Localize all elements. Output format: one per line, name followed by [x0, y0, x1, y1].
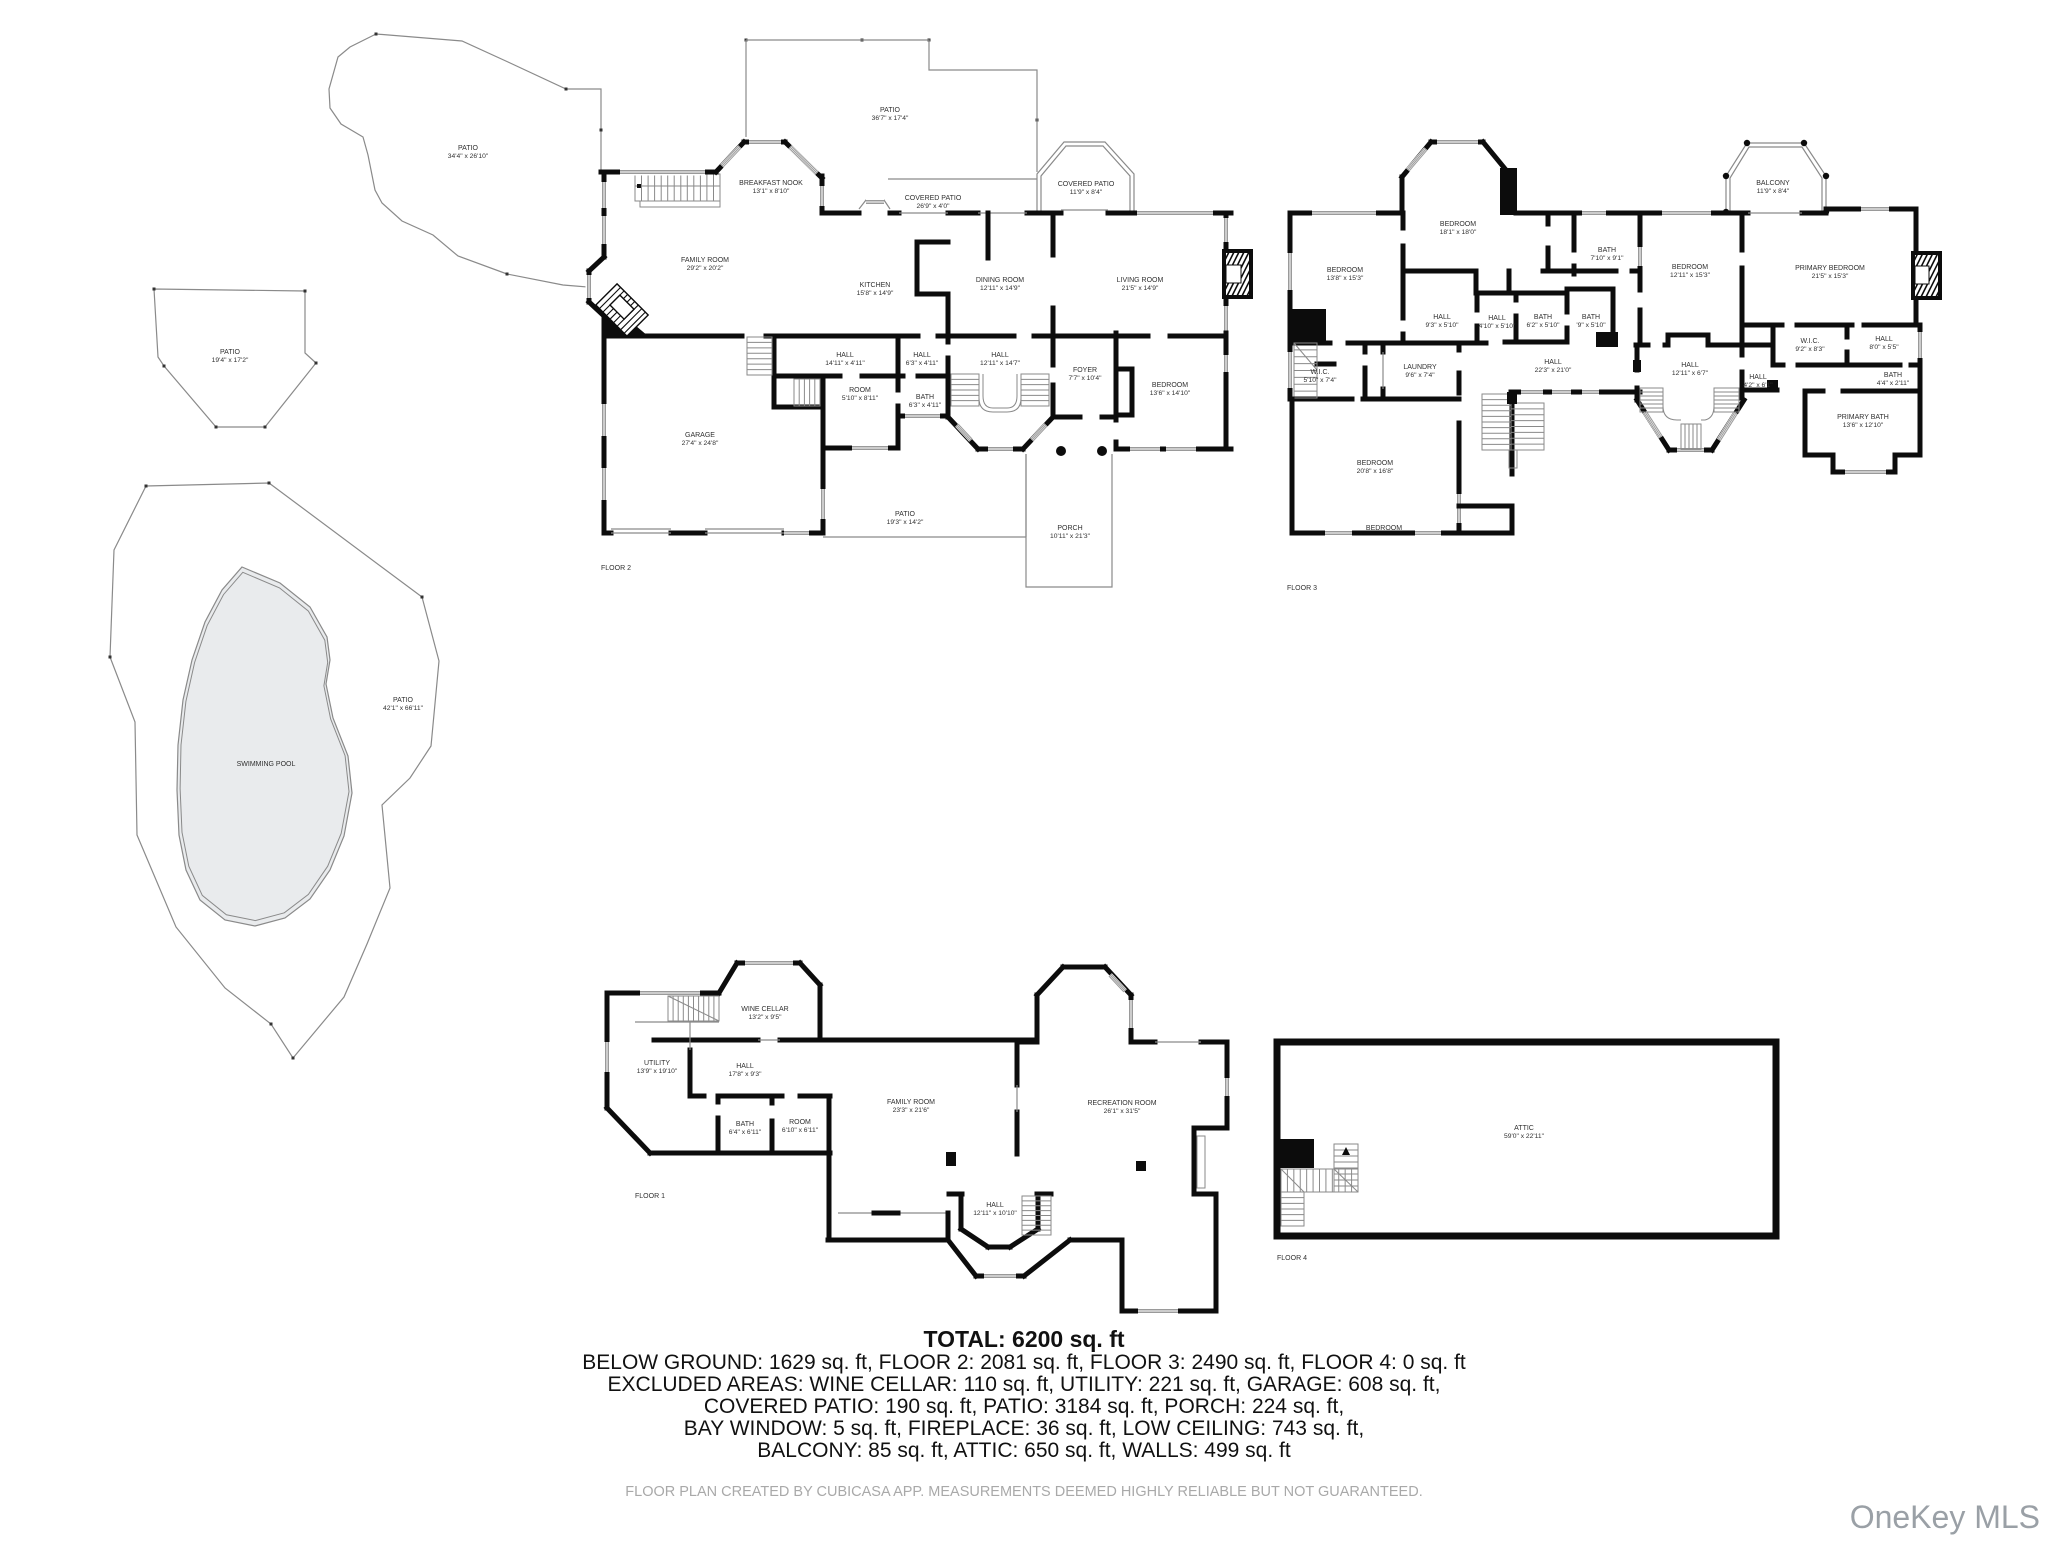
- svg-text:11'9" x 8'4": 11'9" x 8'4": [1070, 189, 1103, 196]
- svg-text:20'8" x 16'8": 20'8" x 16'8": [1357, 468, 1394, 475]
- svg-text:COVERED PATIO: COVERED PATIO: [1058, 181, 1115, 188]
- svg-text:6'3" x 4'11": 6'3" x 4'11": [906, 360, 939, 367]
- svg-text:9'3" x 5'10": 9'3" x 5'10": [1426, 322, 1460, 329]
- svg-text:34'4" x 26'10": 34'4" x 26'10": [448, 153, 489, 160]
- svg-text:PORCH: PORCH: [1057, 525, 1082, 532]
- svg-text:RECREATION ROOM: RECREATION ROOM: [1087, 1100, 1156, 1107]
- svg-text:FLOOR 3: FLOOR 3: [1287, 585, 1317, 592]
- svg-text:7'7" x 10'4": 7'7" x 10'4": [1069, 375, 1103, 382]
- svg-text:6'4" x 6'11": 6'4" x 6'11": [729, 1129, 762, 1136]
- svg-text:12'11" x 6'7": 12'11" x 6'7": [1672, 370, 1709, 377]
- svg-text:BALCONY: BALCONY: [1756, 180, 1790, 187]
- svg-text:ATTIC: ATTIC: [1514, 1125, 1534, 1132]
- svg-text:BATH: BATH: [1534, 314, 1552, 321]
- svg-text:FAMILY ROOM: FAMILY ROOM: [681, 257, 729, 264]
- svg-text:6'2" x 5'10": 6'2" x 5'10": [1527, 322, 1561, 329]
- svg-text:7'10" x 9'1": 7'10" x 9'1": [1591, 255, 1625, 262]
- svg-text:23'3" x 21'6": 23'3" x 21'6": [893, 1107, 930, 1114]
- svg-text:12'11" x 10'10": 12'11" x 10'10": [973, 1210, 1017, 1217]
- svg-text:29'2" x 20'2": 29'2" x 20'2": [687, 265, 724, 272]
- svg-text:HALL: HALL: [913, 352, 931, 359]
- svg-text:FOYER: FOYER: [1073, 367, 1097, 374]
- svg-text:TOTAL: 6200 sq. ft: TOTAL: 6200 sq. ft: [923, 1326, 1124, 1352]
- svg-text:5'10" x 7'4": 5'10" x 7'4": [1304, 377, 1338, 384]
- svg-text:42'1" x 66'11": 42'1" x 66'11": [383, 705, 424, 712]
- svg-text:FAMILY ROOM: FAMILY ROOM: [887, 1099, 935, 1106]
- svg-text:13'9" x 19'10": 13'9" x 19'10": [637, 1068, 678, 1075]
- svg-text:PRIMARY BEDROOM: PRIMARY BEDROOM: [1795, 265, 1865, 272]
- svg-text:13'1" x 8'10": 13'1" x 8'10": [753, 188, 790, 195]
- svg-text:22'3" x 21'0": 22'3" x 21'0": [1535, 367, 1572, 374]
- svg-text:13'6" x 14'10": 13'6" x 14'10": [1150, 390, 1191, 397]
- svg-text:6'3" x 4'11": 6'3" x 4'11": [909, 402, 942, 409]
- svg-text:18'1" x 18'0": 18'1" x 18'0": [1440, 229, 1477, 236]
- svg-text:4'4" x 2'11": 4'4" x 2'11": [1877, 380, 1910, 387]
- svg-text:5'10" x 8'11": 5'10" x 8'11": [842, 395, 879, 402]
- svg-text:DINING ROOM: DINING ROOM: [976, 277, 1024, 284]
- svg-text:13'6" x 12'10": 13'6" x 12'10": [1843, 422, 1884, 429]
- svg-text:BAY WINDOW: 5 sq. ft, FIREPLAC: BAY WINDOW: 5 sq. ft, FIREPLACE: 36 sq. …: [684, 1417, 1364, 1440]
- svg-text:6'10" x 6'11": 6'10" x 6'11": [782, 1127, 819, 1134]
- svg-text:10'11" x 21'3": 10'11" x 21'3": [1050, 533, 1091, 540]
- svg-text:26'1" x 31'5": 26'1" x 31'5": [1104, 1108, 1141, 1115]
- svg-text:19'3" x 14'2": 19'3" x 14'2": [887, 519, 924, 526]
- svg-text:HALL: HALL: [836, 352, 854, 359]
- svg-text:OneKey MLS: OneKey MLS: [1850, 1499, 2040, 1535]
- svg-text:13'8" x 15'3": 13'8" x 15'3": [1327, 275, 1364, 282]
- svg-text:FLOOR 2: FLOOR 2: [601, 565, 631, 572]
- svg-text:HALL: HALL: [986, 1202, 1004, 1209]
- svg-text:26'9" x 4'0": 26'9" x 4'0": [917, 203, 951, 210]
- svg-text:ROOM: ROOM: [849, 387, 871, 394]
- svg-text:BELOW GROUND: 1629 sq. ft, FLO: BELOW GROUND: 1629 sq. ft, FLOOR 2: 2081…: [582, 1351, 1466, 1374]
- svg-text:ROOM: ROOM: [789, 1119, 811, 1126]
- svg-text:HALL: HALL: [1749, 374, 1767, 381]
- svg-text:14'11" x 4'11": 14'11" x 4'11": [825, 360, 865, 367]
- svg-text:EXCLUDED AREAS: WINE CELLAR: 1: EXCLUDED AREAS: WINE CELLAR: 110 sq. ft,…: [608, 1373, 1441, 1396]
- svg-text:COVERED PATIO: COVERED PATIO: [905, 195, 962, 202]
- svg-text:BEDROOM: BEDROOM: [1357, 460, 1393, 467]
- svg-text:BATH: BATH: [1582, 314, 1600, 321]
- svg-text:COVERED PATIO: 190 sq. ft, PAT: COVERED PATIO: 190 sq. ft, PATIO: 3184 s…: [704, 1395, 1344, 1418]
- svg-text:BATH: BATH: [1884, 372, 1902, 379]
- svg-text:LAUNDRY: LAUNDRY: [1403, 364, 1437, 371]
- svg-text:HALL: HALL: [736, 1063, 754, 1070]
- svg-text:4'10" x 5'10": 4'10" x 5'10": [1479, 323, 1516, 330]
- svg-text:BATH: BATH: [1598, 247, 1616, 254]
- svg-text:12'11" x 14'9": 12'11" x 14'9": [980, 285, 1021, 292]
- svg-text:13'2" x 9'5": 13'2" x 9'5": [749, 1014, 783, 1021]
- svg-text:PATIO: PATIO: [393, 697, 414, 704]
- svg-text:FLOOR 1: FLOOR 1: [635, 1193, 665, 1200]
- svg-text:59'0" x 22'11": 59'0" x 22'11": [1504, 1133, 1545, 1140]
- svg-text:SWIMMING POOL: SWIMMING POOL: [237, 761, 296, 768]
- svg-text:UTILITY: UTILITY: [644, 1060, 670, 1067]
- svg-text:11'9" x 8'4": 11'9" x 8'4": [1757, 188, 1790, 195]
- svg-text:9'2" x 8'3": 9'2" x 8'3": [1795, 346, 1825, 353]
- svg-text:HALL: HALL: [1488, 315, 1506, 322]
- svg-text:8'0" x 5'5": 8'0" x 5'5": [1869, 344, 1899, 351]
- svg-text:27'4" x 24'8": 27'4" x 24'8": [682, 440, 719, 447]
- svg-text:9'6" x 7'4": 9'6" x 7'4": [1405, 372, 1435, 379]
- svg-text:BATH: BATH: [916, 394, 934, 401]
- svg-text:'9" x 5'10": '9" x 5'10": [1576, 322, 1606, 329]
- svg-text:BEDROOM: BEDROOM: [1152, 382, 1188, 389]
- svg-text:12'11" x 14'7": 12'11" x 14'7": [980, 360, 1021, 367]
- svg-text:HALL: HALL: [1681, 362, 1699, 369]
- svg-text:15'8" x 14'9": 15'8" x 14'9": [857, 290, 894, 297]
- svg-text:FLOOR 4: FLOOR 4: [1277, 1255, 1307, 1262]
- svg-text:17'8" x 9'3": 17'8" x 9'3": [729, 1071, 763, 1078]
- svg-text:BEDROOM: BEDROOM: [1327, 267, 1363, 274]
- svg-text:PATIO: PATIO: [880, 107, 901, 114]
- svg-text:BEDROOM: BEDROOM: [1672, 264, 1708, 271]
- svg-text:BREAKFAST NOOK: BREAKFAST NOOK: [739, 180, 803, 187]
- svg-text:WINE CELLAR: WINE CELLAR: [741, 1006, 788, 1013]
- svg-text:W.I.C.: W.I.C.: [1800, 338, 1819, 345]
- svg-text:BATH: BATH: [736, 1121, 754, 1128]
- svg-text:FLOOR PLAN CREATED BY CUBICASA: FLOOR PLAN CREATED BY CUBICASA APP. MEAS…: [625, 1484, 1422, 1500]
- svg-text:21'5" x 15'3": 21'5" x 15'3": [1812, 273, 1849, 280]
- svg-text:21'5" x 14'9": 21'5" x 14'9": [1122, 285, 1159, 292]
- svg-text:HALL: HALL: [1544, 359, 1562, 366]
- svg-text:HALL: HALL: [991, 352, 1009, 359]
- svg-text:BEDROOM: BEDROOM: [1366, 525, 1402, 532]
- svg-text:36'7" x 17'4": 36'7" x 17'4": [872, 115, 909, 122]
- svg-text:HALL: HALL: [1433, 314, 1451, 321]
- svg-text:W.I.C.: W.I.C.: [1310, 369, 1329, 376]
- svg-text:BEDROOM: BEDROOM: [1440, 221, 1476, 228]
- svg-text:KITCHEN: KITCHEN: [860, 282, 891, 289]
- svg-text:GARAGE: GARAGE: [685, 432, 715, 439]
- svg-text:BALCONY: 85 sq. ft, ATTIC: 650: BALCONY: 85 sq. ft, ATTIC: 650 sq. ft, W…: [757, 1439, 1291, 1462]
- svg-text:PATIO: PATIO: [220, 349, 241, 356]
- svg-text:12'11" x 15'3": 12'11" x 15'3": [1670, 272, 1711, 279]
- svg-text:HALL: HALL: [1875, 336, 1893, 343]
- svg-text:PRIMARY BATH: PRIMARY BATH: [1837, 414, 1889, 421]
- svg-text:PATIO: PATIO: [895, 511, 916, 518]
- svg-text:19'4" x 17'2": 19'4" x 17'2": [212, 357, 249, 364]
- svg-text:PATIO: PATIO: [458, 145, 479, 152]
- svg-text:4'2" x 6'1": 4'2" x 6'1": [1743, 382, 1773, 389]
- svg-text:LIVING ROOM: LIVING ROOM: [1117, 277, 1164, 284]
